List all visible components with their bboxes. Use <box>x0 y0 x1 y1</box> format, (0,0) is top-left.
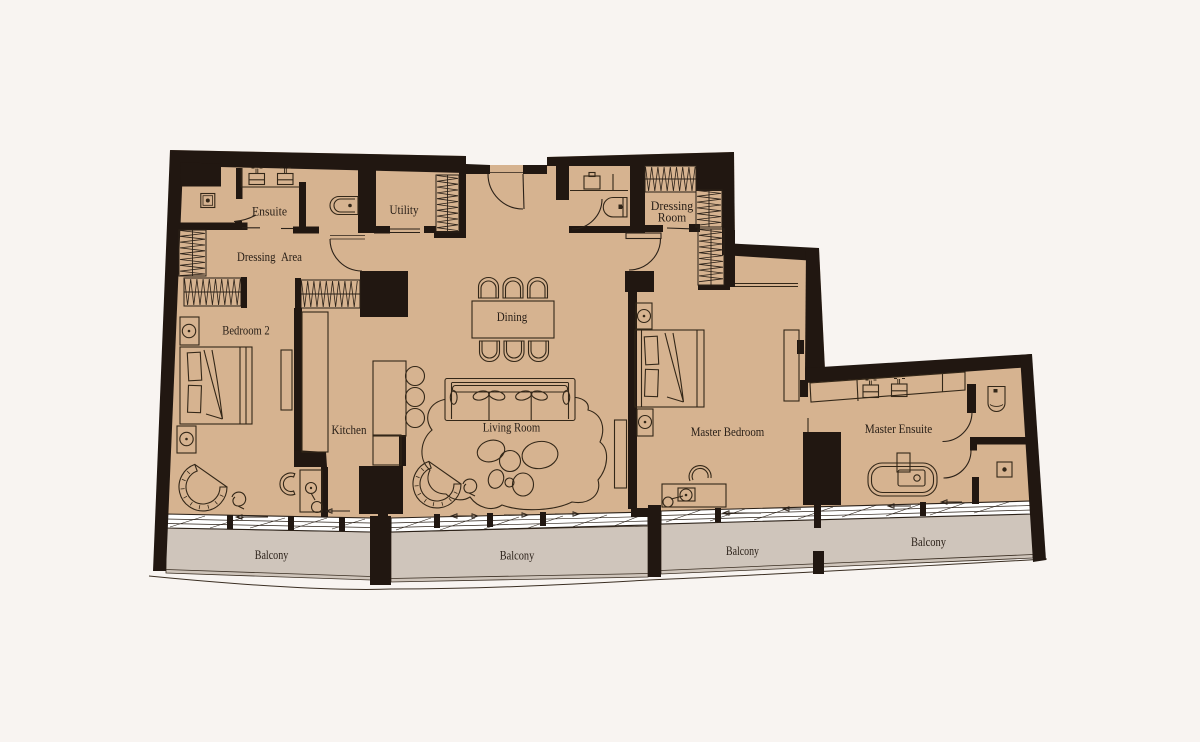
svg-text:Dressing Area: Dressing Area <box>237 249 302 264</box>
svg-text:Dining: Dining <box>497 309 528 324</box>
svg-text:Kitchen: Kitchen <box>332 422 367 437</box>
svg-text:Balcony: Balcony <box>726 543 759 558</box>
svg-text:Utility: Utility <box>390 202 419 217</box>
svg-text:Bedroom 2: Bedroom 2 <box>222 323 270 338</box>
svg-text:Master Ensuite: Master Ensuite <box>865 421 933 436</box>
svg-text:Ensuite: Ensuite <box>252 204 287 219</box>
svg-text:Balcony: Balcony <box>255 547 289 562</box>
svg-text:Room: Room <box>658 210 687 225</box>
svg-text:Balcony: Balcony <box>911 534 946 549</box>
svg-text:Living Room: Living Room <box>483 420 541 435</box>
svg-text:Balcony: Balcony <box>500 548 535 563</box>
svg-text:Master Bedroom: Master Bedroom <box>691 424 765 439</box>
